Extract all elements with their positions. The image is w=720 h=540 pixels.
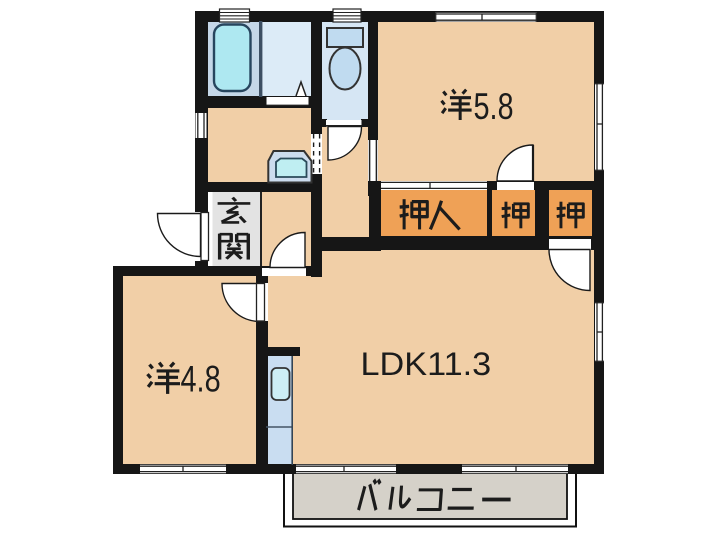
svg-text:LDK11.3: LDK11.3 [361, 347, 492, 383]
svg-text:5.8: 5.8 [474, 87, 514, 128]
svg-text:4.8: 4.8 [181, 359, 221, 400]
